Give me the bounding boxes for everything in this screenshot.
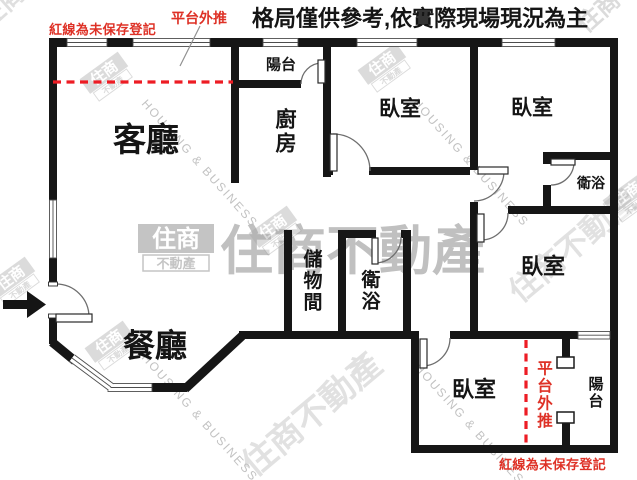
room-label-bedroom-3: 臥室 xyxy=(521,254,565,279)
bathroom1-door-leaf xyxy=(551,159,575,165)
room-label-balcony-top: 陽台 xyxy=(266,55,296,73)
room-label-bathroom-1: 衛浴 xyxy=(576,175,606,191)
watermark-center-logo: 住商不動產 xyxy=(138,224,214,271)
note-platform-bottom: 平台外推 xyxy=(537,359,553,430)
bathroom2-door-leaf xyxy=(372,238,378,264)
room-label-bedroom-4: 臥室 xyxy=(452,377,496,402)
room-label-bedroom-2: 臥室 xyxy=(511,96,553,120)
entrance-door-leaf xyxy=(56,314,92,322)
room-label-living: 客廳 xyxy=(113,121,179,158)
room-label-bathroom-2: 衛浴 xyxy=(360,268,381,312)
bedroom3-door-leaf xyxy=(477,214,484,242)
room-label-balcony-bottom: 陽台 xyxy=(588,376,603,410)
room-label-kitchen: 廚房 xyxy=(276,108,297,156)
floor-plan-page: 住商不動產住商不動產住商不動產住商不動產住商不動產住商不動產HOUSING & … xyxy=(0,0,637,480)
room-label-bedroom-1: 臥室 xyxy=(379,97,421,121)
floor-plan: 住商不動產住商不動產住商不動產住商不動產住商不動產住商不動產HOUSING & … xyxy=(0,0,637,480)
note-platform-top: 平台外推 xyxy=(171,10,227,26)
room-label-storage: 儲物間 xyxy=(303,247,322,313)
svg-text:住商: 住商 xyxy=(152,225,200,253)
bedroom2-door-leaf xyxy=(478,167,508,174)
note-bottom-right: 紅線為未保存登記 xyxy=(499,457,606,472)
bedroom4-door-leaf xyxy=(420,339,427,368)
plan-title: 格局僅供參考,依實際現場現況為主 xyxy=(252,6,588,31)
svg-text:不動產: 不動產 xyxy=(156,256,195,271)
bedroom1-door-leaf xyxy=(330,134,337,171)
balcony-door-leaf xyxy=(318,60,325,83)
note-top-left: 紅線為未保存登記 xyxy=(49,22,156,37)
room-label-dining: 餐廳 xyxy=(123,328,187,364)
